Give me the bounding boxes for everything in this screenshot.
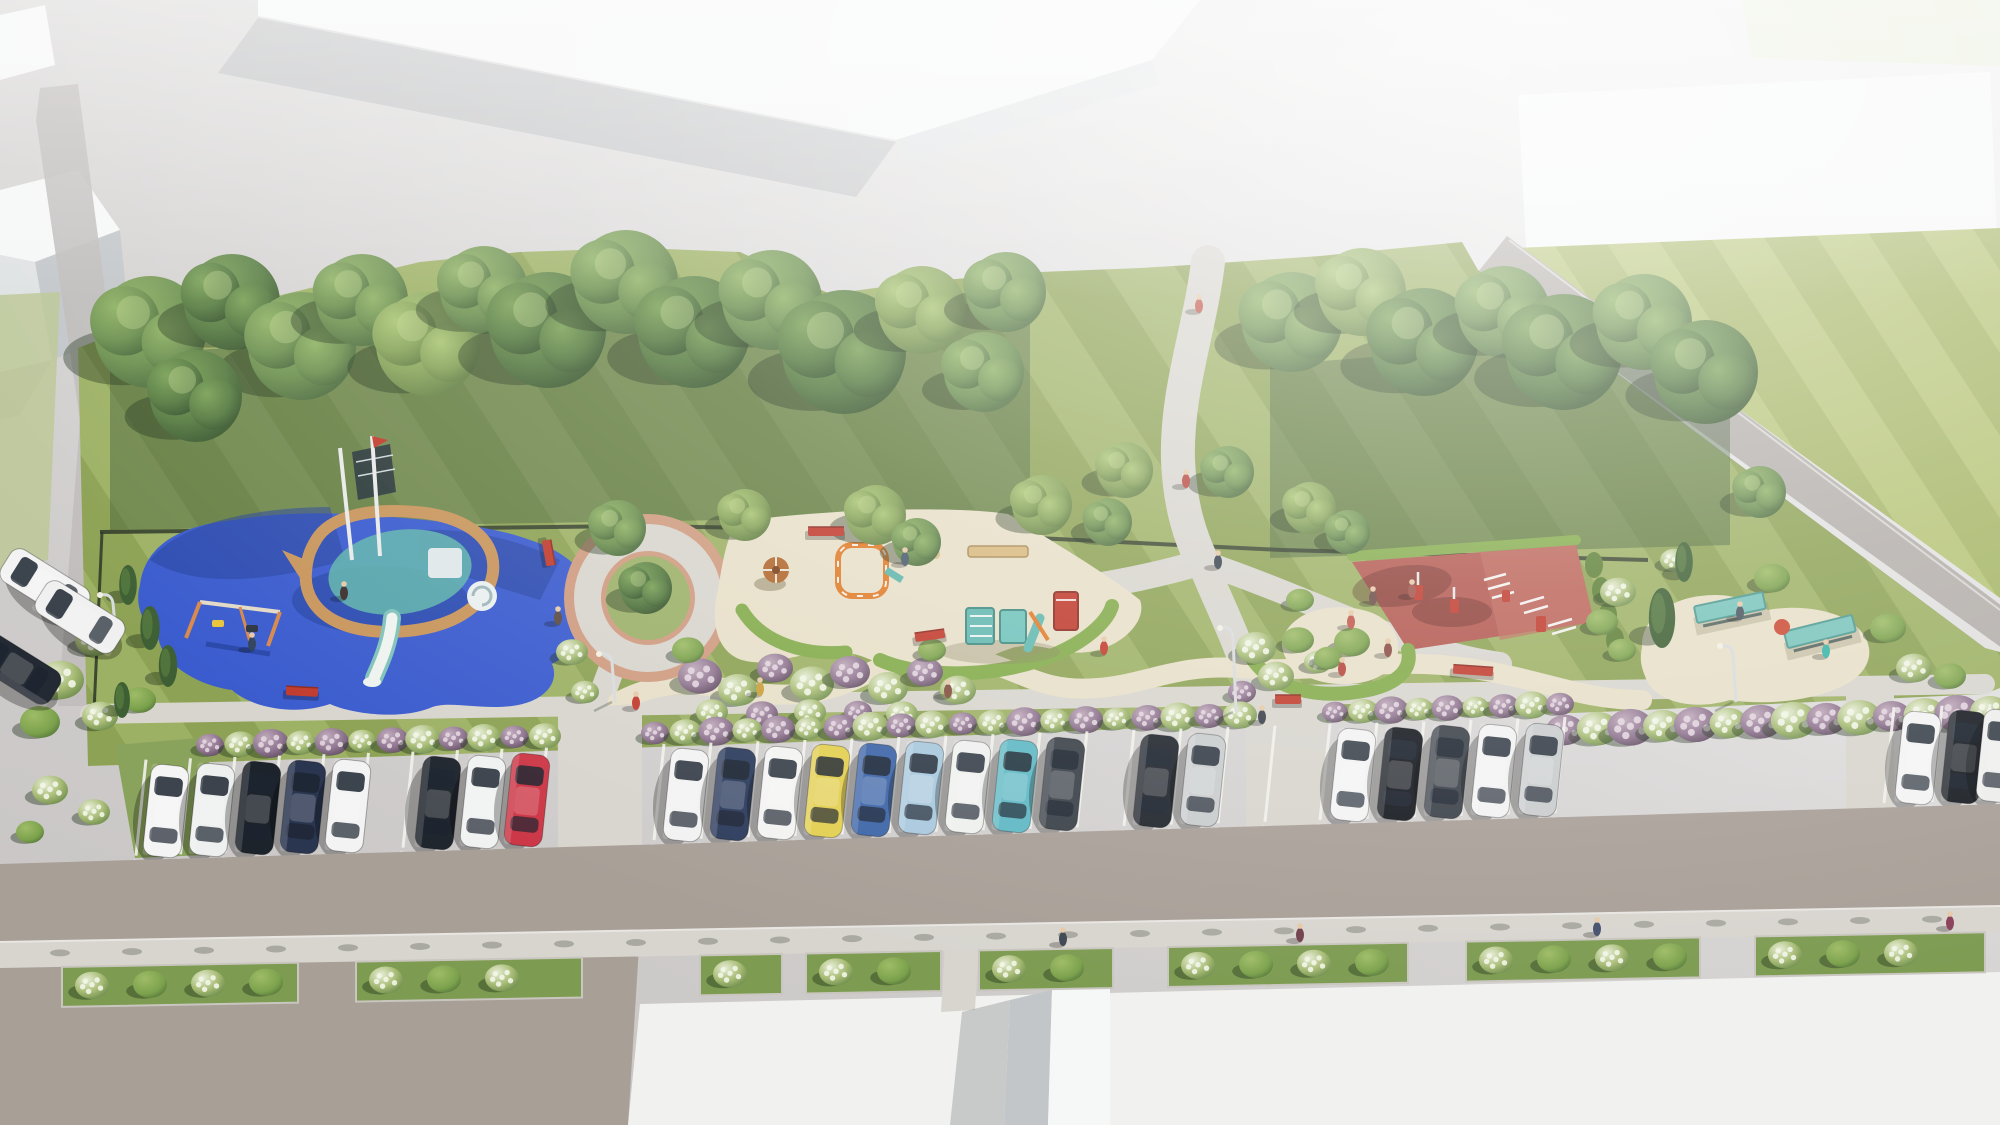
sidewalk-shadow (266, 946, 286, 953)
sidewalk-shadow (1850, 917, 1870, 924)
red-lounge-chair (1774, 619, 1790, 635)
sidewalk-shadow (914, 934, 934, 941)
sidewalk-shadow (1490, 924, 1510, 931)
crossing-walkway (941, 944, 979, 1012)
sidewalk-shadow (1562, 922, 1582, 929)
sidewalk-shadow (698, 938, 718, 945)
sidewalk-shadow (1346, 926, 1366, 933)
aerial-park-rendering (0, 0, 2000, 1125)
sidewalk-shadow (1130, 930, 1150, 937)
sidewalk-shadow (986, 933, 1006, 940)
sidewalk-shadow (842, 935, 862, 942)
sidewalk-shadow (1778, 918, 1798, 925)
sidewalk-shadow (410, 943, 430, 950)
top-right-lawn-corner (1742, 0, 2000, 66)
sidewalk-shadow (1418, 925, 1438, 932)
red-bench (283, 686, 320, 701)
sidewalk-shadow (770, 936, 790, 943)
red-bench (1272, 695, 1302, 708)
red-bench (805, 527, 845, 540)
sidewalk-shadow (1274, 927, 1294, 934)
sidewalk-shadow (122, 948, 142, 955)
balance-bench (968, 546, 1028, 557)
sidewalk-shadow (626, 939, 646, 946)
south-building-face (1004, 990, 1052, 1125)
south-building-roof (1048, 986, 1110, 1125)
sidewalk-shadow (1634, 921, 1654, 928)
driveway-east (1846, 677, 1894, 825)
sidewalk-shadow (194, 947, 214, 954)
scene-canvas (0, 0, 2000, 1125)
sidewalk-shadow (1706, 920, 1726, 927)
sidewalk-shadow (1922, 916, 1942, 923)
sidewalk-shadow (50, 949, 70, 956)
driveway-center (1246, 688, 1326, 840)
sidewalk-shadow (338, 944, 358, 951)
sidewalk-shadow (554, 940, 574, 947)
driveway-west (558, 704, 642, 856)
sidewalk-shadow (1202, 929, 1222, 936)
sidewalk-shadow (482, 942, 502, 949)
